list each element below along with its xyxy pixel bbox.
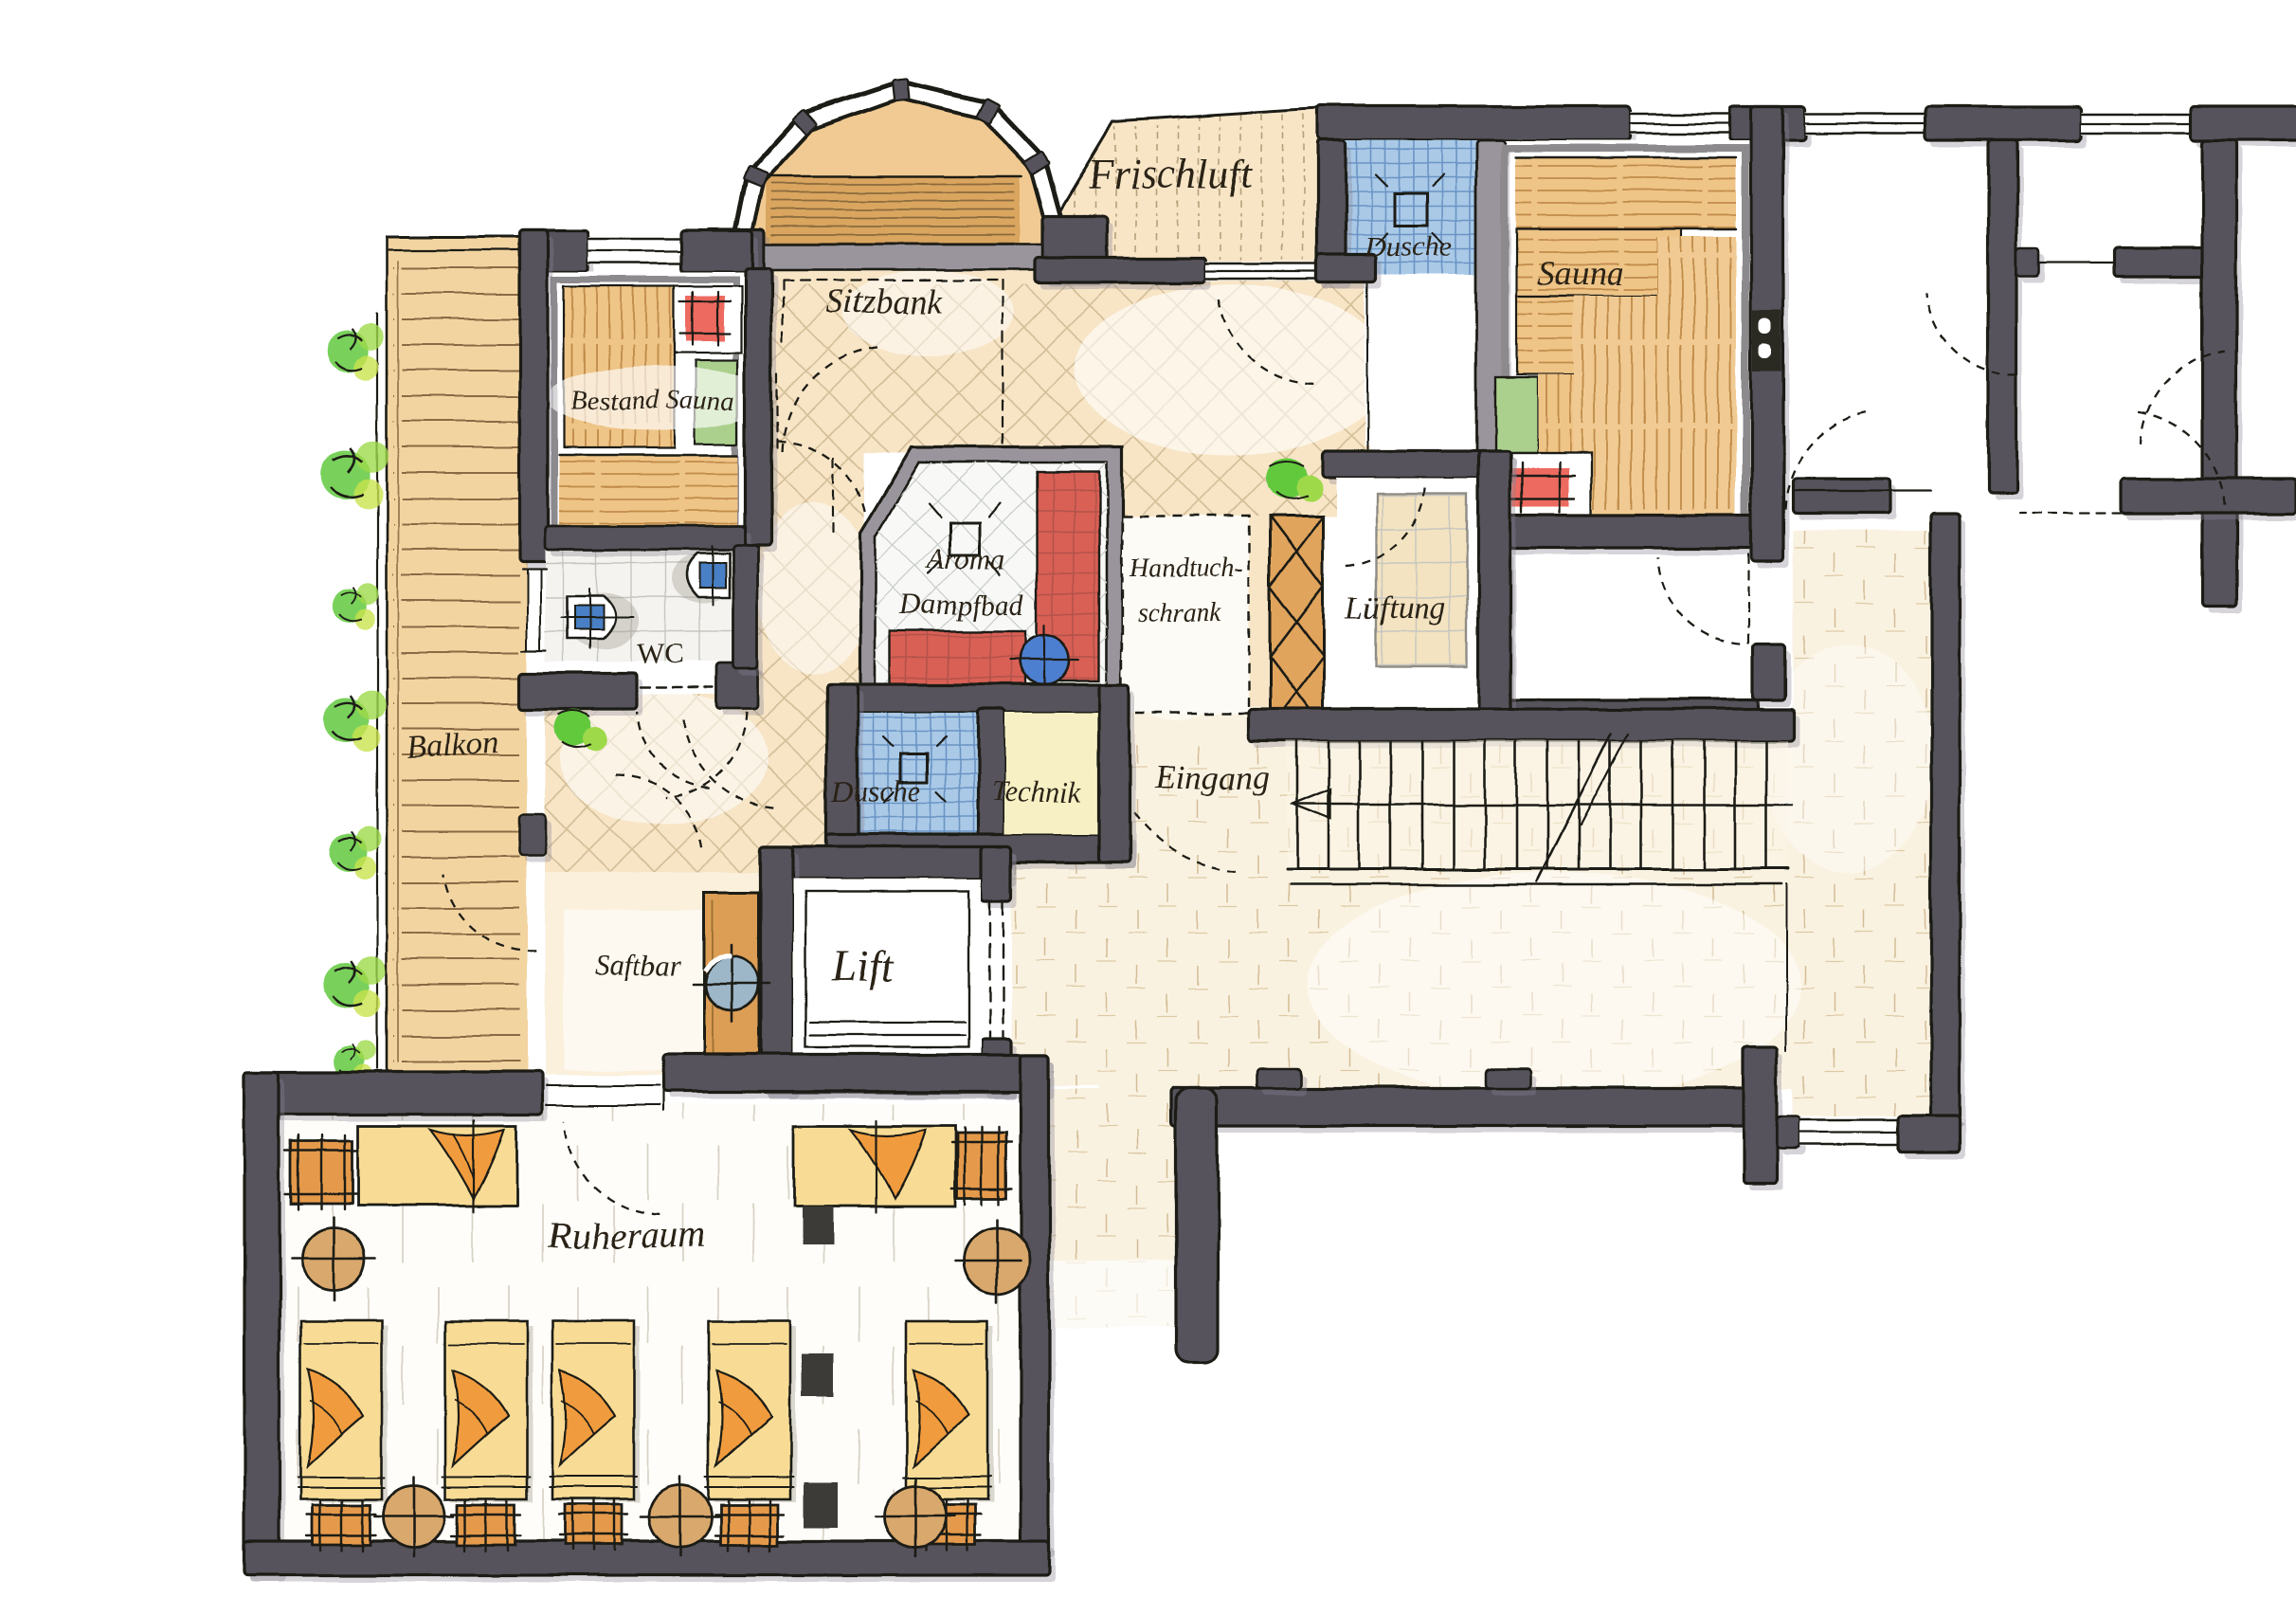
svg-text:Sauna: Sauna [1537,254,1622,292]
svg-text:Lüftung: Lüftung [1345,590,1446,626]
svg-text:Balkon: Balkon [406,724,499,766]
svg-text:WC: WC [637,637,684,670]
svg-text:Frischluft: Frischluft [1087,151,1254,197]
svg-text:Dusche: Dusche [831,774,920,808]
svg-text:Technik: Technik [991,774,1083,808]
svg-text:Bestand Sauna: Bestand Sauna [570,386,734,416]
svg-text:Saftbar: Saftbar [595,948,682,981]
svg-text:Ruheraum: Ruheraum [547,1213,706,1256]
svg-text:schrank: schrank [1137,599,1221,628]
svg-text:Lift: Lift [831,941,894,989]
svg-text:Handtuch-: Handtuch- [1129,554,1243,583]
svg-text:Eingang: Eingang [1153,758,1270,796]
svg-text:Aroma: Aroma [925,542,1005,575]
svg-text:Sitzbank: Sitzbank [826,282,943,320]
svg-text:Dampfbad: Dampfbad [899,588,1024,621]
svg-text:Dusche: Dusche [1364,229,1453,263]
